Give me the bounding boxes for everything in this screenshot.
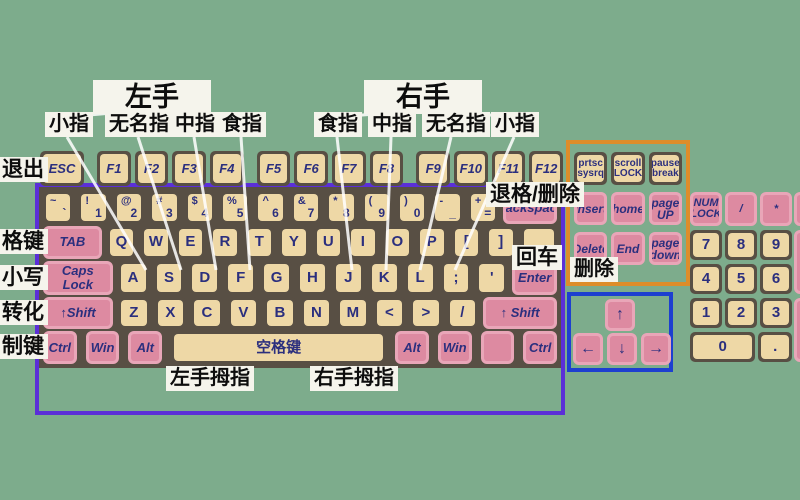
finger-label-left-pinky: 小指 [45,112,93,137]
key-num-7[interactable]: 7 [690,230,722,260]
keycap: ~` [46,194,70,221]
bottom-row: CtrlWinAlt空格键AltWinCtrl [43,331,557,364]
key-main-symbol: _ [439,207,455,219]
keycap: Q [110,229,133,256]
key-r[interactable]: R [210,226,239,259]
key-menu-blank[interactable] [481,331,515,364]
key-a[interactable]: A [118,261,149,295]
keycap: Win [86,331,120,364]
keycap: V [231,300,257,327]
key-label: NUM LOCK [690,198,721,220]
key-label: TAB [59,235,85,249]
key-label: . [773,340,777,354]
key-label: F12 [535,162,557,176]
function-key-row: ESC F1F2F3F4 F5F6F7F8 F9F10F11F12 [40,151,563,186]
key-label: F [236,271,245,285]
keycap: I [351,229,374,256]
key-label: C [201,306,212,320]
keycap: 5 [728,267,754,291]
f1-f4-group: F1F2F3F4 [97,151,244,186]
finger-label-right-pinky: 小指 [491,112,539,137]
key-s[interactable]: S [154,261,185,295]
keycap: @2 [117,194,141,221]
key-label: Enter [518,271,551,285]
key-label: Q [116,235,128,249]
key-label: Y [289,235,299,249]
key-num-multiply[interactable]: * [760,192,792,226]
key-home[interactable]: home [611,192,644,225]
arrow-cluster-box: ↑ ← ↓ → [567,292,673,372]
side-label-shift: 转化 [0,300,48,325]
key-8[interactable]: *8 [326,191,356,224]
key-label: I [361,235,365,249]
keycap: Alt [128,331,162,364]
key-win-right[interactable]: Win [438,331,472,364]
key-main-symbol: 0 [404,207,420,219]
key-4[interactable]: $4 [185,191,215,224]
enter-callout: 回车 [512,245,562,270]
key-t[interactable]: T [245,226,274,259]
key-arrow-down[interactable]: ↓ [607,333,637,365]
key-label: 1 [702,306,710,320]
key-num-8[interactable]: 8 [725,230,757,260]
keycap: < [377,300,403,327]
key-label: S [164,271,174,285]
key-1[interactable]: !1 [78,191,108,224]
nav-row-insert: Inserthomepage UP [574,192,682,225]
keycap: R [213,229,236,256]
key-label: F1 [106,162,121,176]
key-arrow-right[interactable]: → [641,333,671,365]
keycap: D [192,264,217,292]
key-label: ' [490,271,494,285]
key-label: 2 [737,306,745,320]
key-b[interactable]: B [264,297,296,330]
key-f1[interactable]: F1 [97,151,131,186]
key-label: N [311,306,322,320]
keycap: X [158,300,184,327]
keycap: page UP [649,192,682,225]
keycap: N [304,300,330,327]
keyboard-finger-diagram: 左手 右手 小指 无名指 中指 食指 食指 中指 无名指 小指 退出 格键 小写… [0,0,800,500]
key-main-symbol: 5 [227,207,243,219]
right-hand-label: 右手 [364,80,482,114]
key-label: V [238,306,248,320]
keycap: G [264,264,289,292]
key-less-than[interactable]: < [374,297,406,330]
right-arrow-icon: → [648,342,664,356]
numpad-row-123: 123 [690,298,792,328]
numpad-row-top: NUM LOCK/* [690,192,792,226]
key-label: page down [650,237,681,261]
key-2[interactable]: @2 [114,191,144,224]
key-slash[interactable]: / [447,297,479,330]
keycap: F12 [532,154,560,183]
keycap: prtsc sysrq [577,155,604,182]
keycap: !1 [81,194,105,221]
key-scroll-lock[interactable]: scroll LOCK [611,152,644,185]
keycap: ← [573,333,603,365]
key-q[interactable]: Q [107,226,136,259]
keycap: S [157,264,182,292]
keycap: T [248,229,271,256]
key-num-1[interactable]: 1 [690,298,722,328]
key-label: L [415,271,424,285]
keycap: 6 [763,267,789,291]
keycap: A [121,264,146,292]
key-k[interactable]: K [369,261,400,295]
key-main-symbol: 8 [333,207,349,219]
keycap: )0 [400,194,424,221]
keycap: $4 [188,194,212,221]
keycap: 2 [728,301,754,325]
key-label: F10 [460,162,482,176]
key-u[interactable]: U [314,226,343,259]
key-0[interactable]: )0 [397,191,427,224]
key-label: prtsc sysrq [577,159,604,179]
key-f11[interactable]: F11 [492,151,526,186]
key-label: P [427,235,437,249]
key-label: F7 [341,162,356,176]
keycap: ; [444,264,469,292]
key-label: scroll LOCK [614,159,641,179]
keycap: 空格键 [174,334,383,361]
key-y[interactable]: Y [279,226,308,259]
key-main-symbol: = [475,207,491,219]
key-label: End [617,243,640,255]
backspace-callout: 退格/删除 [486,182,584,207]
key-f12[interactable]: F12 [529,151,563,186]
key-label: pause break [652,159,679,179]
keycap: *8 [329,194,353,221]
key-num-divide[interactable]: / [725,192,757,226]
keycap: 7 [693,233,719,257]
key-minus[interactable]: -_ [432,191,462,224]
key-f3[interactable]: F3 [172,151,206,186]
key-quote[interactable]: ' [476,261,507,295]
key-label: B [274,306,285,320]
key-arrow-up[interactable]: ↑ [605,299,635,331]
delete-callout: 删除 [570,257,618,282]
key-main-symbol: 9 [369,207,385,219]
key-label: X [165,306,175,320]
key-label: F4 [219,162,234,176]
key-f6[interactable]: F6 [294,151,328,186]
key-label: H [307,271,318,285]
keycap: / [725,192,757,226]
key-num-lock[interactable]: NUM LOCK [690,192,722,226]
keycap: F11 [495,154,523,183]
key-label: ] [498,235,503,249]
keycap: F5 [260,154,288,183]
key-page-down[interactable]: page down [649,232,682,265]
key-label: ; [453,271,458,285]
key-label: Ctrl [529,341,551,355]
left-hand-label: 左手 [93,80,211,114]
key-label: E [185,235,195,249]
key-label: A [128,271,139,285]
keycap: 4 [693,267,719,291]
key-label: 3 [772,306,780,320]
keycap: K [372,264,397,292]
key-z[interactable]: Z [118,297,150,330]
keycap: H [300,264,325,292]
numpad-row-789: 789 [690,230,792,260]
key-label: ESC [49,162,76,176]
key-p[interactable]: P [417,226,446,259]
key-d[interactable]: D [189,261,220,295]
keycap: F7 [335,154,363,183]
side-label-tab: 格键 [0,229,48,254]
keycap: 3 [763,301,789,325]
key-label: 0 [719,340,727,354]
keycap: %5 [223,194,247,221]
key-label: ↑Shift [60,306,95,320]
key-label: 8 [737,238,745,252]
key-page-up[interactable]: page UP [649,192,682,225]
finger-label-right-index: 食指 [314,112,362,137]
right-thumb-callout: 右手拇指 [310,366,398,391]
key-label: 7 [702,238,710,252]
key-label: page UP [651,197,679,221]
key-label: F8 [379,162,394,176]
key-shift-left[interactable]: ↑Shift [43,297,113,330]
key-e[interactable]: E [176,226,205,259]
keycap: E [179,229,202,256]
key-label: D [199,271,210,285]
left-arrow-icon: ← [580,342,596,356]
key-i[interactable]: I [348,226,377,259]
key-label: F11 [498,162,519,176]
key-label: [ [464,235,469,249]
key-f7[interactable]: F7 [332,151,366,186]
key-label: K [379,271,390,285]
key-label: W [149,235,163,249]
key-label: 空格键 [256,341,301,355]
finger-label-left-middle: 中指 [171,112,219,137]
key-label: O [391,235,403,249]
key-6[interactable]: ^6 [255,191,285,224]
keycap: (9 [365,194,389,221]
keycap: Z [121,300,147,327]
key-num-4[interactable]: 4 [690,264,722,294]
keycap: M [340,300,366,327]
keycap: . [761,335,789,359]
keycap: F6 [297,154,325,183]
keycap: pause break [652,155,679,182]
numpad-cut-key-enter[interactable] [794,298,800,362]
keycap: 1 [693,301,719,325]
numpad-cut-key-plus[interactable] [794,230,800,294]
nav-row-system: prtsc sysrqscroll LOCKpause break [574,152,682,185]
key-num-0[interactable]: 0 [690,332,755,362]
keycap: F [228,264,253,292]
keycap: L [408,264,433,292]
keycap: ↓ [607,333,637,365]
keycap: Ctrl [523,331,557,364]
key-f[interactable]: F [225,261,256,295]
key-caps-lock[interactable]: Caps Lock [43,261,113,295]
key-label: Caps Lock [46,264,110,292]
key-f5[interactable]: F5 [257,151,291,186]
key-f2[interactable]: F2 [135,151,169,186]
key-g[interactable]: G [261,261,292,295]
key-label: Ctrl [49,341,71,355]
keycap: F3 [175,154,203,183]
key-bracket-left[interactable]: [ [452,226,481,259]
numpad-row-456: 456 [690,264,792,294]
keycap: NUM LOCK [690,192,722,226]
key-tab[interactable]: TAB [43,226,102,259]
key-h[interactable]: H [297,261,328,295]
keycap: 8 [728,233,754,257]
keycap: Caps Lock [43,261,113,295]
key-f8[interactable]: F8 [370,151,404,186]
key-num-5[interactable]: 5 [725,264,757,294]
key-n[interactable]: N [301,297,333,330]
key-5[interactable]: %5 [220,191,250,224]
key-main-symbol: 2 [121,207,137,219]
key-label: home [612,203,644,215]
key-shift-right[interactable]: ↑ Shift [483,297,557,330]
key-label: F3 [182,162,197,176]
keycap: → [641,333,671,365]
key-m[interactable]: M [337,297,369,330]
key-num-dot[interactable]: . [758,332,792,362]
key-greater-than[interactable]: > [410,297,442,330]
left-thumb-callout: 左手拇指 [166,366,254,391]
key-label: Win [91,341,115,355]
key-f10[interactable]: F10 [454,151,488,186]
finger-label-right-ring: 无名指 [422,112,490,137]
key-label: 9 [772,238,780,252]
key-x[interactable]: X [155,297,187,330]
keycap: Ctrl [43,331,77,364]
finger-label-right-middle: 中指 [368,112,416,137]
down-arrow-icon: ↓ [618,342,626,356]
key-label: 4 [702,272,710,286]
key-alt-left[interactable]: Alt [128,331,162,364]
keycap: &7 [294,194,318,221]
key-label: 5 [737,272,745,286]
key-label: M [347,306,360,320]
keycap: / [450,300,476,327]
keycap: U [317,229,340,256]
keycap: F4 [213,154,241,183]
key-9[interactable]: (9 [362,191,392,224]
key-num-2[interactable]: 2 [725,298,757,328]
keycap: W [144,229,167,256]
keycap: ↑Shift [43,297,113,330]
keycap: 9 [763,233,789,257]
key-main-symbol: ` [50,207,66,219]
key-3[interactable]: #3 [149,191,179,224]
key-o[interactable]: O [383,226,412,259]
key-label: R [219,235,230,249]
keycap: * [760,192,792,226]
key-num-3[interactable]: 3 [760,298,792,328]
key-ctrl-left[interactable]: Ctrl [43,331,77,364]
f9-f12-group: F9F10F11F12 [416,151,563,186]
keycap: J [336,264,361,292]
key-f4[interactable]: F4 [210,151,244,186]
key-label: / [460,306,464,320]
key-label: G [271,271,283,285]
keycap: [ [455,229,478,256]
keycap: ] [489,229,512,256]
key-label: F6 [304,162,319,176]
keycap: P [420,229,443,256]
key-main-symbol: 4 [192,207,208,219]
keycap: #3 [152,194,176,221]
main-keyboard-panel: ~`!1@2#3$4%5^6&7*8(9)0-_+=Backspace TABQ… [39,187,561,368]
key-c[interactable]: C [191,297,223,330]
key-ctrl-right[interactable]: Ctrl [523,331,557,364]
key-alt-right[interactable]: Alt [395,331,429,364]
key-f9[interactable]: F9 [416,151,450,186]
key-w[interactable]: W [141,226,170,259]
key-semicolon[interactable]: ; [441,261,472,295]
key-num-9[interactable]: 9 [760,230,792,260]
numpad-cut-key-minus[interactable] [794,192,800,226]
key-label: Alt [137,341,154,355]
keycap: Y [282,229,305,256]
key-j[interactable]: J [333,261,364,295]
key-label: Win [443,341,467,355]
keycap: 0 [693,335,752,359]
key-label: ↑ Shift [501,306,540,320]
key-label: * [774,204,778,215]
key-space[interactable]: 空格键 [171,331,386,364]
key-main-symbol: 3 [156,207,172,219]
keycap: F9 [419,154,447,183]
side-label-ctrl: 制键 [0,334,48,359]
key-label: 6 [772,272,780,286]
number-row: ~`!1@2#3$4%5^6&7*8(9)0-_+=Backspace [43,191,557,224]
key-label: Alt [403,341,420,355]
key-label: T [255,235,264,249]
qwerty-row: TABQWERTYUIOP[] [43,226,557,259]
key-main-symbol: 6 [262,207,278,219]
key-pause-break[interactable]: pause break [649,152,682,185]
key-arrow-left[interactable]: ← [573,333,603,365]
key-l[interactable]: L [405,261,436,295]
keycap: page down [649,232,682,265]
key-7[interactable]: &7 [291,191,321,224]
key-print-screen[interactable]: prtsc sysrq [574,152,607,185]
shift-row: ↑ShiftZXCVBNM<>/↑ Shift [43,297,557,330]
key-label: F5 [266,162,281,176]
key-tilde[interactable]: ~` [43,191,73,224]
key-main-symbol: 7 [298,207,314,219]
home-row: Caps LockASDFGHJKL;'Enter [43,261,557,295]
key-v[interactable]: V [228,297,260,330]
key-label: J [344,271,352,285]
keycap: ↑ [605,299,635,331]
numpad-row-0: 0. [690,332,792,362]
key-label: F9 [426,162,441,176]
keycap: O [386,229,409,256]
key-label: F2 [144,162,159,176]
key-win-left[interactable]: Win [86,331,120,364]
numpad: NUM LOCK/* 789 456 123 0. [690,192,792,362]
key-num-6[interactable]: 6 [760,264,792,294]
keycap: > [413,300,439,327]
keycap: F8 [373,154,401,183]
keycap: -_ [435,194,459,221]
keycap: ESC [43,154,81,183]
side-label-esc: 退出 [0,157,48,182]
